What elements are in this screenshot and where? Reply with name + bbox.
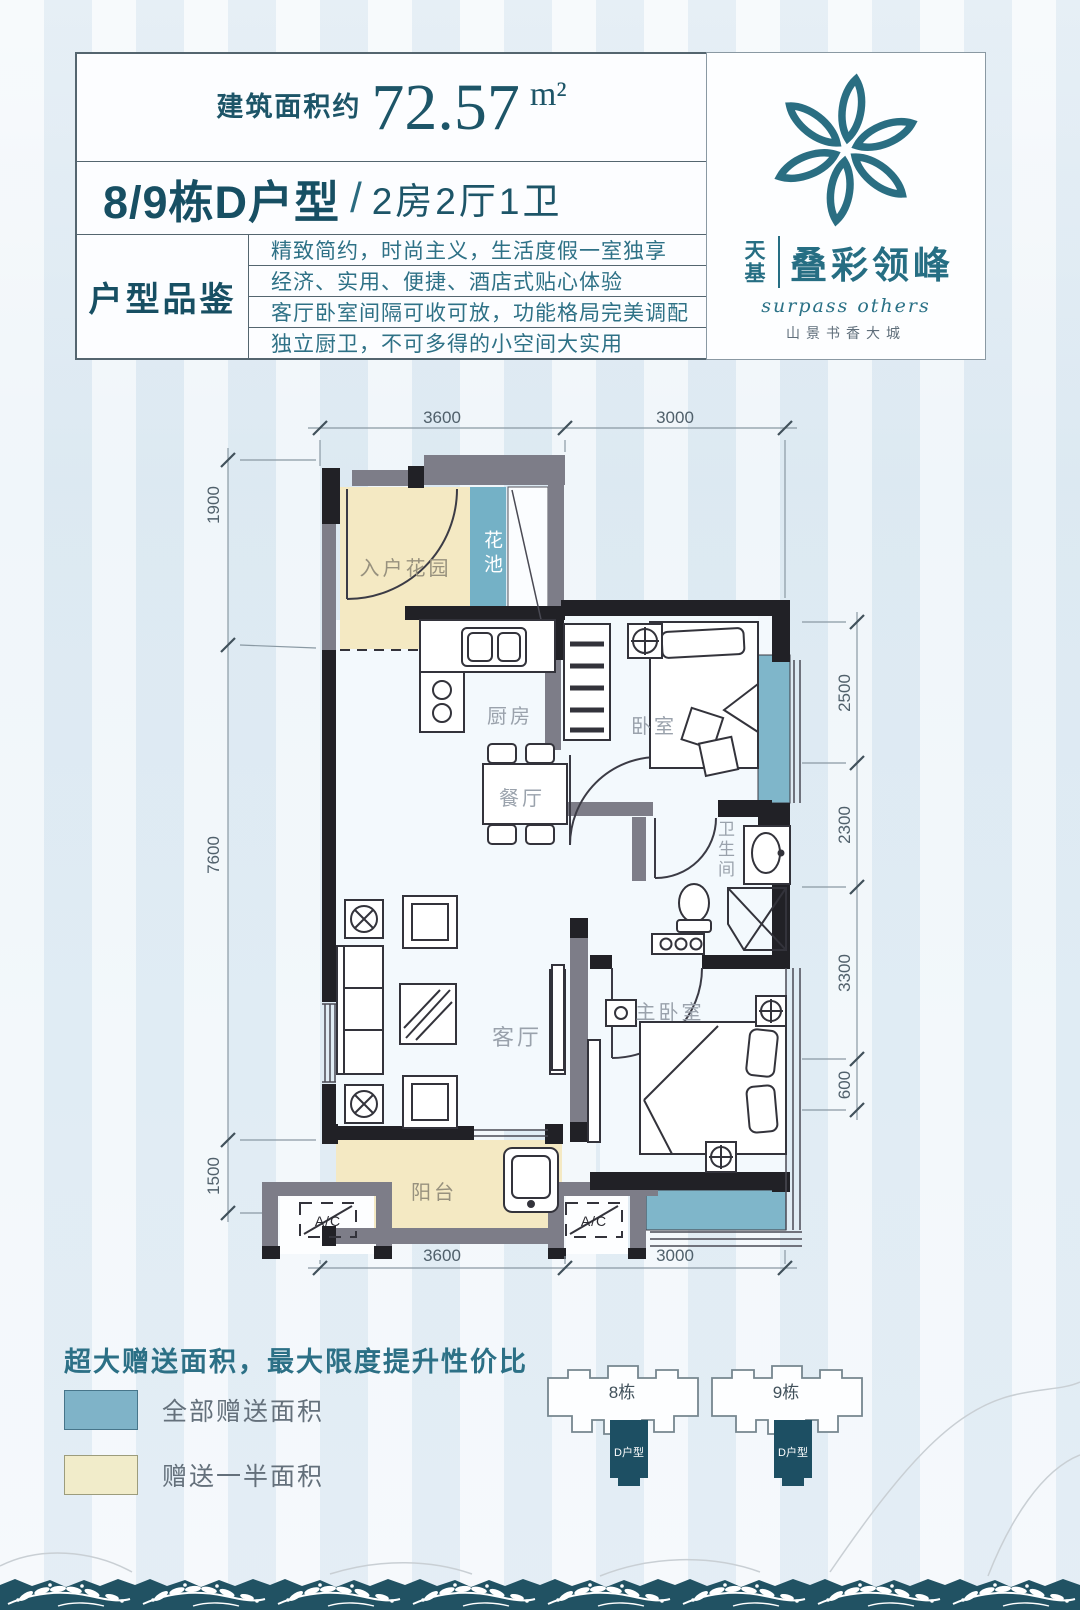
review-line-2: 经济、实用、便捷、酒店式贴心体验 xyxy=(249,266,706,297)
legend-title: 超大赠送面积，最大限度提升性价比 xyxy=(64,1340,528,1379)
room-label-kitchen: 厨房 xyxy=(478,700,542,729)
review-lines: 精致简约，时尚主义，生活度假一室独享 经济、实用、便捷、酒店式贴心体验 客厅卧室… xyxy=(249,235,706,358)
legend-label-half-gift: 赠送一半面积 xyxy=(162,1457,324,1493)
legend-label-full-gift: 全部赠送面积 xyxy=(162,1392,324,1428)
unit-title: 8/9栋D户型 xyxy=(103,166,340,231)
brand-divider xyxy=(778,236,780,288)
area-label: 建筑面积约 xyxy=(216,85,361,130)
room-label-bedroom: 卧室 xyxy=(622,710,686,739)
dim-left-3: 1500 xyxy=(204,1157,224,1195)
brand-flower-icon xyxy=(761,67,931,233)
area-value: 72.57 xyxy=(371,75,520,141)
area-unit: m² xyxy=(530,76,567,114)
dim-bottom-2: 3000 xyxy=(656,1246,694,1266)
review-label: 户型品鉴 xyxy=(77,235,249,358)
legend-item-half-gift: 赠送一半面积 xyxy=(64,1455,324,1495)
review-line-4: 独立厨卫，不可多得的小空间大实用 xyxy=(249,328,706,358)
room-label-bathroom: 卫生间 xyxy=(712,820,737,880)
brand-row: 天基 叠彩领峰 xyxy=(738,235,954,289)
review-line-1: 精致简约，时尚主义，生活度假一室独享 xyxy=(249,235,706,266)
legend-swatch-half-gift xyxy=(64,1455,138,1495)
brand-tagline-en: surpass others xyxy=(761,295,931,317)
room-label-flower-bed: 花池 xyxy=(478,530,505,578)
dim-left-2: 7600 xyxy=(204,836,224,874)
dim-top-1: 3600 xyxy=(423,408,461,428)
info-table: 建筑面积约 72.57 m² 8/9栋D户型 / 2房2厅1卫 户型品鉴 精致简… xyxy=(75,52,708,360)
room-label-living: 客厅 xyxy=(482,1020,552,1052)
review-row: 户型品鉴 精致简约，时尚主义，生活度假一室独享 经济、实用、便捷、酒店式贴心体验… xyxy=(77,235,706,358)
review-line-3: 客厅卧室间隔可收可放，功能格局完美调配 xyxy=(249,297,706,328)
dim-right-1: 2500 xyxy=(835,674,855,712)
room-label-dining: 餐厅 xyxy=(490,782,554,811)
legend-swatch-full-gift xyxy=(64,1390,138,1430)
dim-top-2: 3000 xyxy=(656,408,694,428)
title-separator: / xyxy=(350,174,362,222)
title-row: 8/9栋D户型 / 2房2厅1卫 xyxy=(77,162,706,235)
brand-tagline-cn: 山景书香大城 xyxy=(786,323,906,343)
ac-label-left: A/C xyxy=(315,1213,341,1229)
logo-box: 天基 叠彩领峰 surpass others 山景书香大城 xyxy=(706,52,986,360)
keyplan-unit-8-label: D户型 xyxy=(614,1445,644,1459)
room-label-balcony: 阳台 xyxy=(402,1176,466,1205)
brand-left: 天基 xyxy=(738,239,768,285)
unit-subtitle: 2房2厅1卫 xyxy=(372,171,563,225)
footer-leaf-band xyxy=(0,1576,1080,1610)
dim-right-3: 3300 xyxy=(835,954,855,992)
dim-bottom-1: 3600 xyxy=(423,1246,461,1266)
room-label-master: 主卧室 xyxy=(622,996,718,1025)
room-label-entry-garden: 入户花园 xyxy=(348,552,463,581)
dim-right-2: 2300 xyxy=(835,806,855,844)
keyplan-building-9-label: 9栋 xyxy=(773,1383,799,1402)
keyplan-unit-9-label: D户型 xyxy=(778,1445,808,1459)
legend-item-full-gift: 全部赠送面积 xyxy=(64,1390,324,1430)
brand-name: 叠彩领峰 xyxy=(790,235,954,289)
keyplan-building-8-label: 8栋 xyxy=(609,1383,635,1402)
dim-right-4: 600 xyxy=(835,1071,855,1099)
keyplan: 8栋 D户型 9栋 D户型 xyxy=(548,1366,862,1486)
dim-left-1: 1900 xyxy=(204,486,224,524)
ac-label-right: A/C xyxy=(581,1213,607,1229)
area-row: 建筑面积约 72.57 m² xyxy=(77,54,706,162)
